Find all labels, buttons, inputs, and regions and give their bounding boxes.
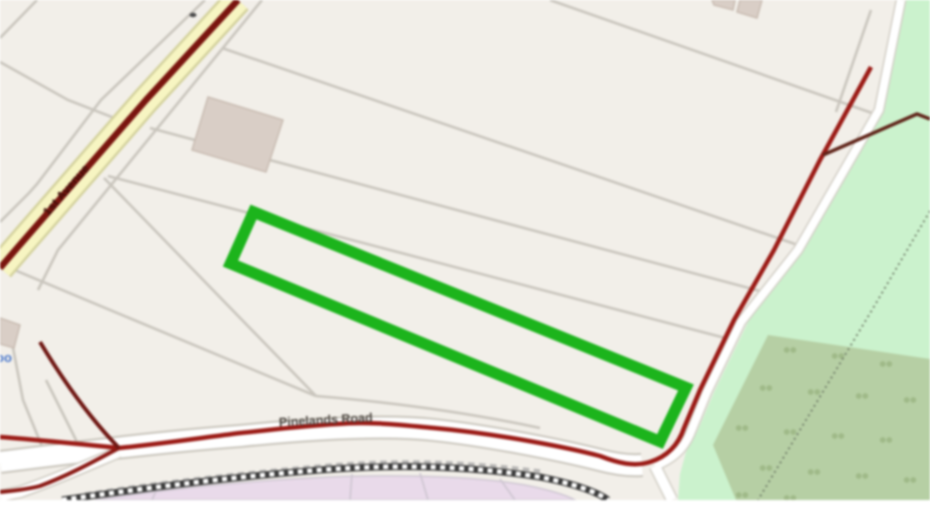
- svg-text:oo: oo: [0, 350, 12, 365]
